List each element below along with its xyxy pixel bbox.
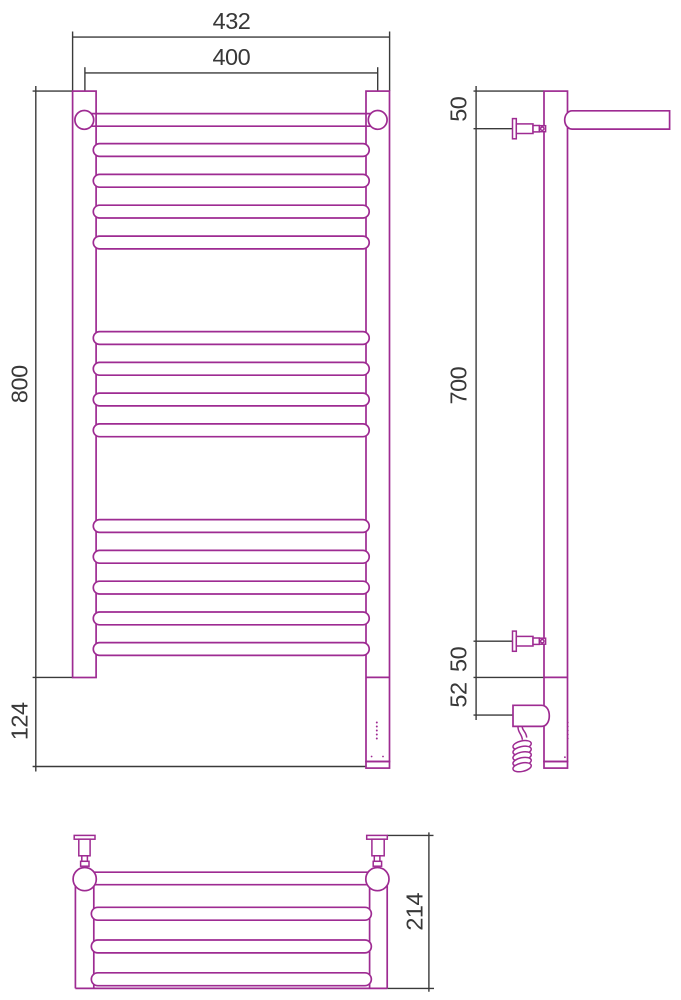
svg-text:400: 400	[212, 44, 250, 70]
svg-text:700: 700	[446, 366, 472, 404]
svg-text:52: 52	[446, 682, 472, 707]
svg-text:214: 214	[402, 893, 428, 931]
svg-text:124: 124	[7, 702, 33, 740]
svg-text:50: 50	[446, 96, 472, 122]
svg-text:50: 50	[446, 646, 472, 672]
svg-text:432: 432	[213, 8, 251, 34]
svg-text:800: 800	[7, 365, 33, 403]
